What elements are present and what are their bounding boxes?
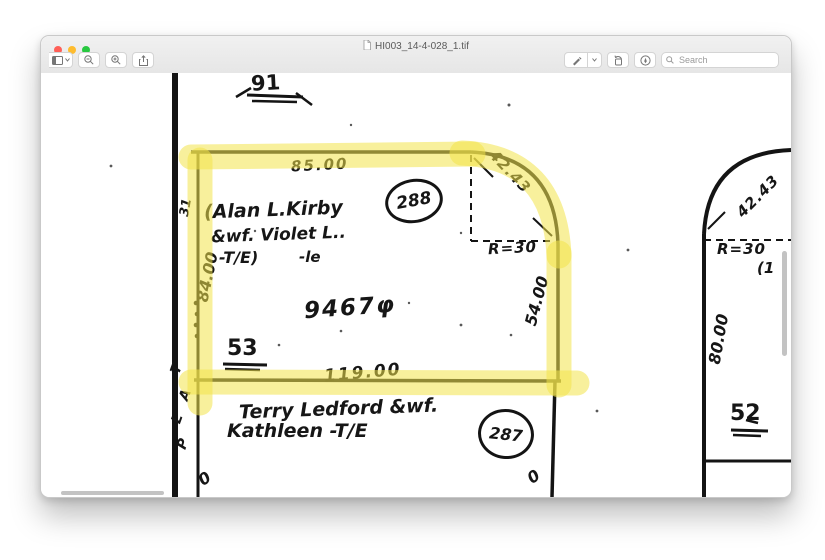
dim-left-80: 80.00 — [705, 295, 736, 365]
rotate-button[interactable] — [607, 52, 629, 68]
lot-number-52: 52 — [730, 401, 761, 426]
title-bar: HI003_14-4-028_1.tif — [41, 36, 791, 74]
zero-mark-left: 0 — [195, 468, 215, 490]
dim-left-84: 84.00 — [193, 233, 226, 303]
search-icon — [666, 51, 674, 69]
corner-radius-288: R=30 — [488, 238, 538, 259]
owner-288-line3: -T/E) — [219, 248, 258, 267]
margin-number-31: 31 — [177, 197, 195, 217]
area-288: 9467φ — [303, 292, 397, 324]
parcel-circle-288: 288 — [382, 174, 447, 227]
corner-radius-52: R=30 — [717, 240, 766, 258]
scan-view: 91 85.00 (Alan L.Kirby &wf. Violet L.. -… — [41, 73, 791, 497]
view-menu-button[interactable] — [49, 52, 73, 68]
horizontal-scrollbar[interactable] — [61, 491, 164, 495]
owner-288-note: -le — [299, 248, 321, 266]
corner-chord-52: 42.43 — [733, 159, 791, 221]
dim-right-54: 54.00 — [521, 257, 557, 328]
magnifier-minus-icon — [84, 55, 94, 65]
highlight-dropdown-button[interactable] — [588, 52, 602, 68]
preview-window: HI003_14-4-028_1.tif — [40, 35, 792, 498]
owner-288-line2: &wf. Violet L.. — [211, 223, 347, 248]
sidebar-icon — [52, 56, 63, 65]
owner-287-line2: Kathleen -T/E — [227, 420, 368, 442]
road-letter-t: T — [168, 362, 186, 376]
highlighter-pen-icon — [571, 55, 582, 66]
paren-note-52: (1 — [757, 259, 774, 277]
dim-top-85: 85.00 — [291, 155, 349, 176]
share-icon — [139, 55, 148, 66]
lot-number-53: 53 — [227, 336, 258, 361]
corner-chord-288: 42.43 — [486, 146, 547, 209]
highlight-pen-button[interactable] — [564, 52, 588, 68]
block-number: 91 — [250, 73, 280, 96]
parcel-circle-287: 287 — [476, 406, 537, 462]
rotate-left-icon — [613, 55, 624, 66]
search-input[interactable] — [677, 54, 771, 66]
zoom-in-button[interactable] — [105, 52, 127, 68]
chevron-down-icon — [592, 58, 597, 62]
share-button[interactable] — [132, 52, 154, 68]
markup-pen-circle-icon — [640, 55, 651, 66]
plat-text: 91 85.00 (Alan L.Kirby &wf. Violet L.. -… — [41, 73, 791, 497]
vertical-scrollbar[interactable] — [782, 251, 787, 356]
owner-288-line1: (Alan L.Kirby — [204, 197, 343, 224]
markup-button[interactable] — [634, 52, 656, 68]
chevron-down-icon — [65, 58, 70, 62]
toolbar — [41, 52, 791, 70]
road-letter-l: L — [168, 412, 186, 426]
magnifier-plus-icon — [111, 55, 121, 65]
zoom-out-button[interactable] — [78, 52, 100, 68]
zero-mark-right: 0 — [524, 466, 544, 488]
road-letter-a: A — [176, 387, 195, 403]
window-title: HI003_14-4-028_1.tif — [375, 41, 469, 52]
road-letter-p: P — [174, 436, 193, 451]
search-field[interactable] — [661, 52, 779, 68]
dim-bottom-119: 119.00 — [323, 360, 402, 387]
